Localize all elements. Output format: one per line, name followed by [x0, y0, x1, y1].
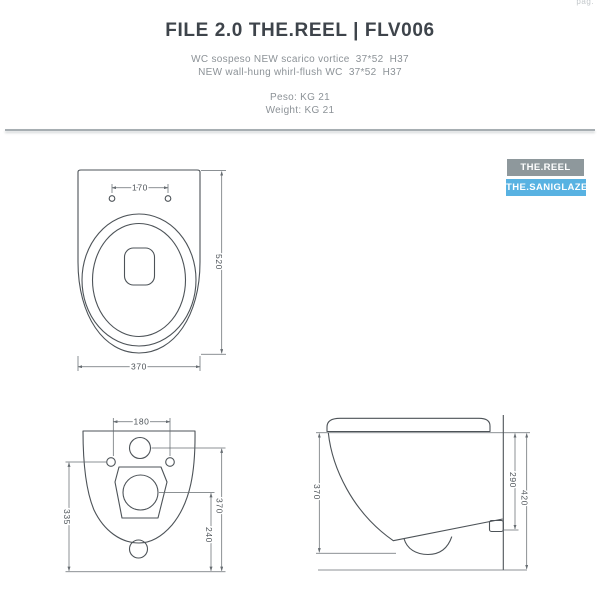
dim-label-front-height: 370: [312, 484, 322, 500]
fixing-hole-right: [165, 196, 171, 202]
flush-opening: [125, 248, 155, 285]
header: FILE 2.0 THE.REEL | FLV006 WC sospeso NE…: [0, 0, 600, 117]
bowl-inner-oval: [93, 224, 186, 337]
dim-label-inlet-height: 370: [214, 498, 224, 514]
dim-label-hole-spacing: 180: [134, 416, 150, 426]
header-divider: [5, 129, 595, 131]
dim-label-depth: 520: [214, 254, 224, 270]
weight-italian: Peso: KG 21: [0, 91, 600, 104]
product-description-english: NEW wall-hung whirl-flush WC 37*52 H37: [0, 66, 600, 79]
fixing-hole-left: [107, 458, 116, 467]
fixing-hole-right: [166, 458, 175, 467]
technical-drawings: 170 520 370 180 335: [0, 140, 600, 600]
weight-english: Weight: KG 21: [0, 104, 600, 117]
dim-label-drain-height: 240: [204, 527, 214, 543]
side-view-drawing: 370 290 420: [312, 415, 530, 570]
top-view-drawing: 170 520 370: [78, 170, 226, 371]
product-description-italian: WC sospeso NEW scarico vortice 37*52 H37: [0, 53, 600, 66]
bottom-view-drawing: 180 335 240 370: [62, 416, 226, 571]
dim-label-overall-height: 420: [519, 490, 529, 506]
dim-label-width: 370: [131, 361, 147, 371]
bowl-front-profile: [328, 433, 502, 541]
mounting-bracket: [490, 521, 504, 532]
page-title: FILE 2.0 THE.REEL | FLV006: [0, 0, 600, 42]
spec-sheet-page: pag. FILE 2.0 THE.REEL | FLV006 WC sospe…: [0, 0, 600, 600]
dim-label-rear-depth: 290: [508, 472, 518, 488]
seat-lid-profile: [327, 418, 490, 431]
wc-plan-outline: [78, 170, 200, 353]
seat-outer-oval: [82, 214, 196, 346]
dim-label-height-left: 335: [62, 509, 72, 525]
dim-label-hole-spacing: 170: [132, 182, 148, 192]
fixing-hole-left: [109, 196, 115, 202]
water-inlet-hole: [130, 438, 151, 459]
trap-profile: [404, 537, 452, 555]
drain-outlet-hole: [123, 475, 158, 510]
